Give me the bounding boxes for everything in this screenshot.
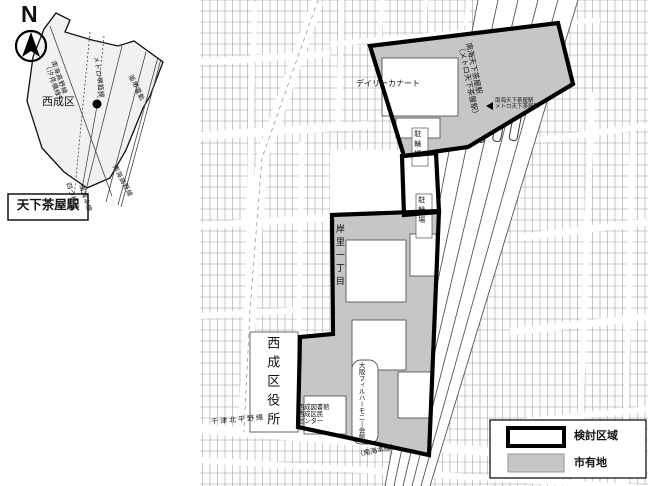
supermarket-label: デイリーカナート [356, 80, 420, 89]
legend-city-land-swatch [508, 454, 564, 472]
library-label-line3: センター [298, 418, 329, 425]
legend-study-area-label: 検討区域 [574, 430, 618, 442]
legend [490, 420, 646, 478]
bicycle-parking-south-label: 駐輪場 [417, 196, 425, 226]
legend-study-area-swatch [508, 428, 564, 446]
bicycle-parking-north-label: 駐輪場 [413, 130, 421, 160]
station-location-dot [93, 100, 102, 109]
station-callout: 南海天下茶屋駅 メトロ天下茶屋駅 [495, 98, 539, 110]
compass-n-label: N [21, 2, 38, 27]
phil-hall-building [352, 360, 378, 444]
library-label-line2: 西成区民 [298, 411, 329, 418]
library-label: 西成図書館 西成区民 センター [298, 404, 329, 425]
library-label-line1: 西成図書館 [298, 404, 329, 411]
station-callout-line2: メトロ天下茶屋駅 [495, 104, 539, 110]
district-label: 岸里一丁目 [334, 224, 344, 289]
ward-office-label: 西成区役所 [265, 336, 279, 431]
legend-city-land-label: 市有地 [574, 457, 607, 469]
tengachaya-station-label: 天下茶屋駅 [10, 199, 86, 213]
phil-hall-label: 大阪フィルハーモニー会館 [357, 362, 364, 440]
map-screenshot: N 西成区 南海高野線 （汐見橋線） メトロ堺筋線 阪堺電軌 四つ橋線 南海本線… [0, 0, 648, 486]
